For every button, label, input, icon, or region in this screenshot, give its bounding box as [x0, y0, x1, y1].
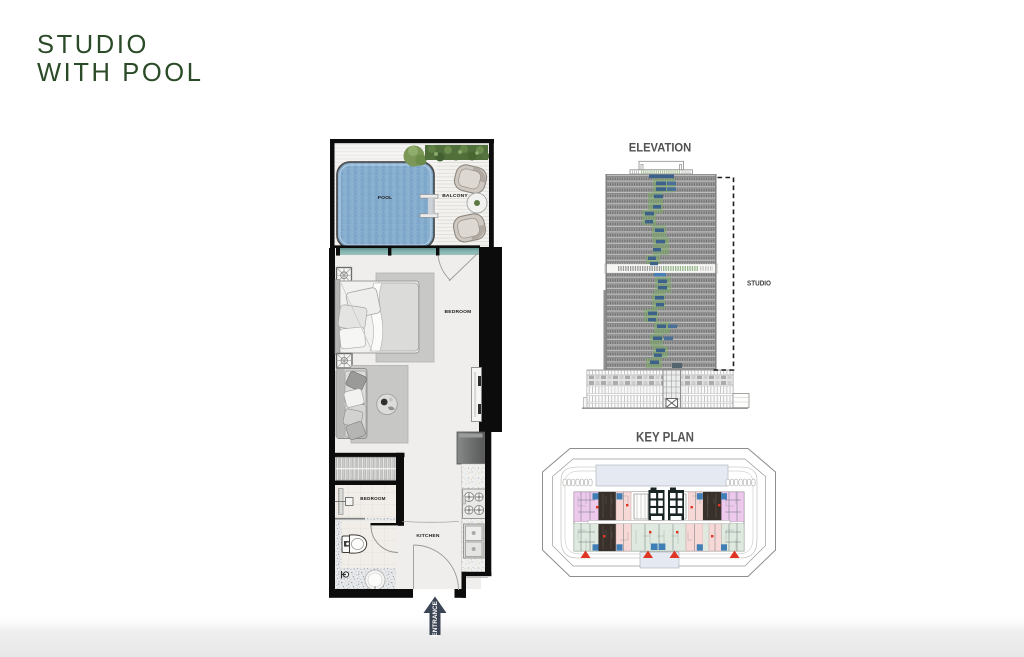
- svg-text:POOL: POOL: [378, 195, 393, 201]
- svg-text:STUDIO: STUDIO: [747, 279, 771, 288]
- svg-text:ELEVATION: ELEVATION: [629, 141, 692, 155]
- svg-text:KITCHEN: KITCHEN: [416, 533, 439, 539]
- svg-text:STUDIO: STUDIO: [37, 31, 149, 59]
- svg-text:BALCONY: BALCONY: [442, 193, 468, 199]
- svg-text:ENTRANCE: ENTRANCE: [432, 600, 439, 636]
- svg-text:BEDROOM: BEDROOM: [360, 496, 385, 501]
- svg-text:WITH POOL: WITH POOL: [37, 59, 204, 87]
- svg-text:BEDROOM: BEDROOM: [445, 309, 472, 315]
- svg-text:KEY PLAN: KEY PLAN: [636, 430, 694, 445]
